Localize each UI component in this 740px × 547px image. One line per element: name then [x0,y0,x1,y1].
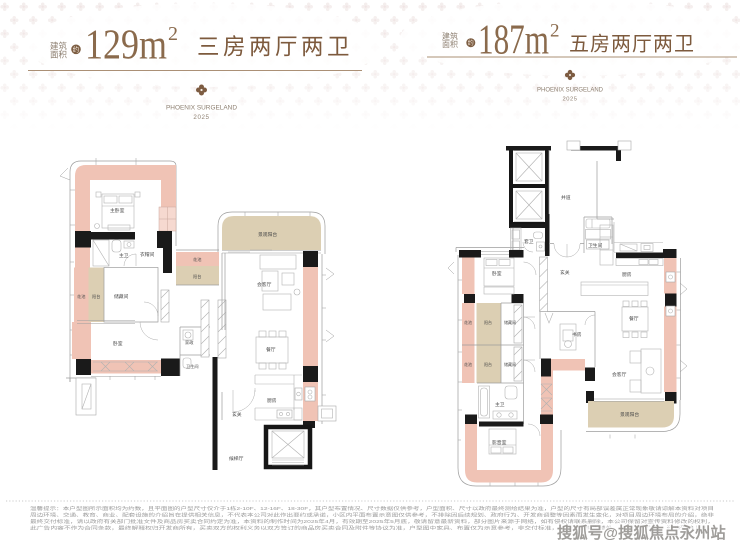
svg-text:花池: 花池 [77,293,86,300]
svg-text:景观阳台: 景观阳台 [258,231,277,238]
svg-text:2: 2 [550,21,560,42]
svg-text:主卧室: 主卧室 [110,207,125,214]
svg-text:玄关: 玄关 [232,411,242,418]
svg-text:厨房: 厨房 [267,397,277,404]
svg-text:卫生间: 卫生间 [186,363,199,370]
svg-text:PHOENIX SURGELAND: PHOENIX SURGELAND [537,88,604,94]
svg-text:主卫: 主卫 [495,401,505,408]
svg-text:景观阳台: 景观阳台 [620,411,639,418]
svg-text:候梯厅: 候梯厅 [229,455,244,462]
svg-text:五房两厅两卫: 五房两厅两卫 [569,33,695,56]
svg-text:卫生间: 卫生间 [588,242,603,249]
svg-text:井道: 井道 [561,194,571,201]
svg-text:温馨提示：本户型图所示面积均为约数，且平面图的户型尺寸仅介于: 温馨提示：本户型图所示面积均为约数，且平面图的户型尺寸仅介于1栋2-10F、12… [30,505,714,512]
svg-text:厨房: 厨房 [622,271,632,278]
svg-text:阳台: 阳台 [484,361,492,367]
svg-text:储藏间: 储藏间 [114,293,129,300]
svg-text:约: 约 [73,45,80,54]
svg-text:花池: 花池 [464,319,472,325]
svg-text:面积: 面积 [50,50,68,60]
svg-text:2025: 2025 [563,97,578,103]
svg-text:储藏间: 储藏间 [504,319,516,325]
svg-text:卧室: 卧室 [492,270,502,277]
svg-text:阳台: 阳台 [92,293,100,300]
svg-text:会客厅: 会客厅 [612,371,627,378]
svg-text:2: 2 [168,23,178,45]
svg-text:主卫: 主卫 [119,252,129,259]
svg-text:花池: 花池 [464,361,472,367]
svg-text:PHOENIX SURGELAND: PHOENIX SURGELAND [166,105,238,112]
svg-text:卧室: 卧室 [113,340,123,347]
svg-text:129m: 129m [85,23,167,69]
svg-text:玄关: 玄关 [560,269,570,276]
svg-text:约: 约 [468,39,474,47]
svg-text:花池: 花池 [193,256,202,263]
svg-text:2025: 2025 [193,114,209,121]
svg-text:餐厅: 餐厅 [266,346,276,353]
svg-text:周边环境、交通、教育、商业、配套设施的介绍旨在提供相关信息，: 周边环境、交通、教育、商业、配套设施的介绍旨在提供相关信息，不代表本公司对此作出… [30,512,715,519]
svg-text:三房两厅两卫: 三房两厅两卫 [197,35,353,60]
svg-text:餐厅: 餐厅 [629,315,639,322]
svg-text:阳台: 阳台 [484,319,492,325]
svg-text:家政: 家政 [185,339,194,346]
svg-text:影音室: 影音室 [492,439,507,446]
svg-text:储藏间: 储藏间 [504,361,516,367]
svg-text:衣帽间: 衣帽间 [140,251,155,258]
svg-text:套卫: 套卫 [524,238,534,245]
svg-text:面积: 面积 [442,39,458,49]
svg-text:阳台: 阳台 [193,273,201,280]
svg-text:书房: 书房 [572,331,582,338]
svg-text:会客厅: 会客厅 [257,281,272,288]
